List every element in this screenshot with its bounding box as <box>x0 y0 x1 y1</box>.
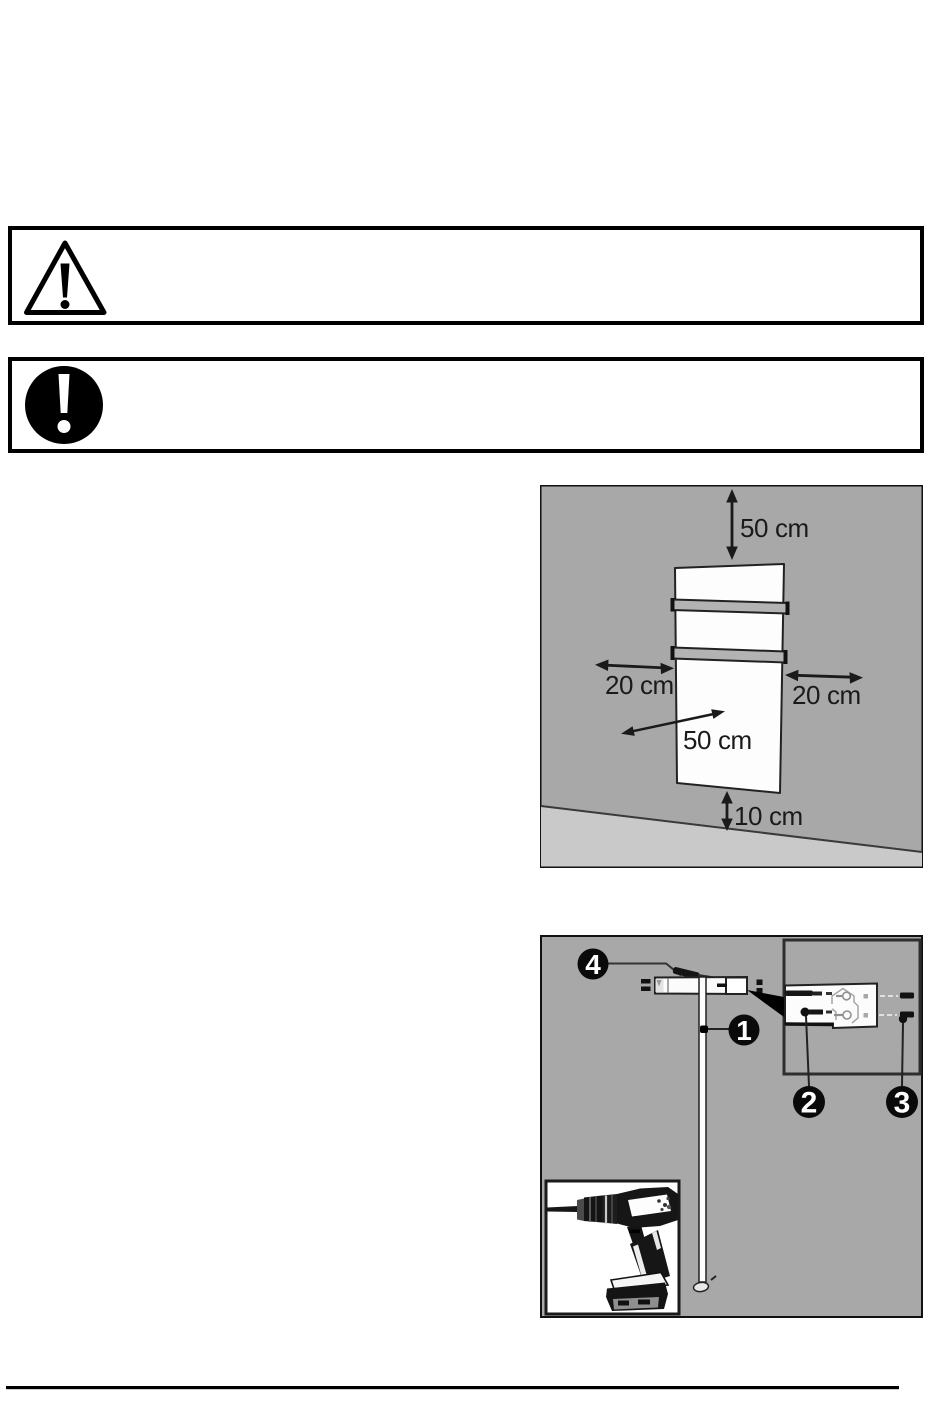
svg-text:2: 2 <box>801 1087 818 1120</box>
svg-text:4: 4 <box>585 949 601 980</box>
svg-text:50 cm: 50 cm <box>683 725 752 755</box>
svg-text:3: 3 <box>894 1087 911 1120</box>
svg-text:1: 1 <box>736 1015 752 1046</box>
svg-text:20 cm: 20 cm <box>605 670 674 700</box>
svg-text:10 cm: 10 cm <box>734 801 803 831</box>
svg-text:50 cm: 50 cm <box>740 513 809 543</box>
svg-text:20 cm: 20 cm <box>792 680 861 710</box>
